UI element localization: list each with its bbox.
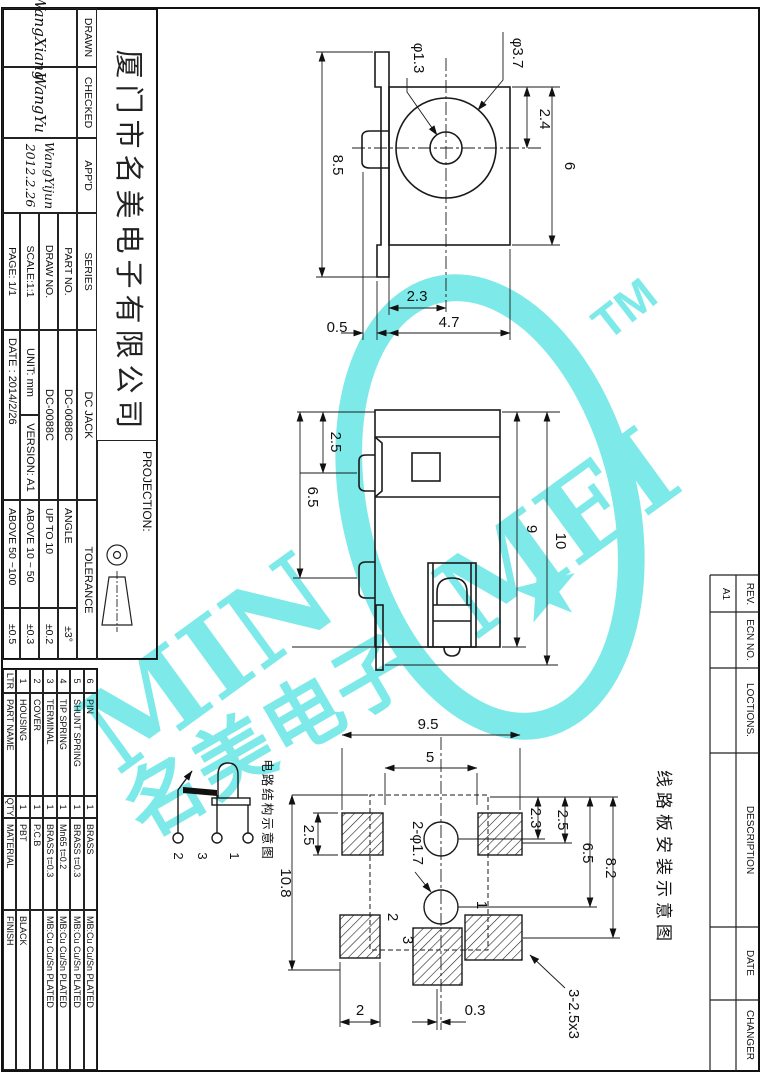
- side-view: 2.5 6.5 9 10: [292, 410, 569, 670]
- schematic-switch-arm: [178, 771, 192, 790]
- checked-label: CHECKED: [77, 67, 97, 138]
- tolerance-row-label: UP TO 10: [39, 500, 58, 608]
- dim-2: 2: [356, 1002, 364, 1019]
- pcb-caption: 线路板安装示意图: [654, 770, 673, 946]
- side-lug-1: [359, 455, 375, 491]
- third-angle-projection-icon: [99, 539, 135, 639]
- projection-label: PROJECTION:: [140, 451, 153, 532]
- bom-row: 1HOUSING1PBTBLACK: [16, 669, 29, 1070]
- date-value: DATE : 2014/2/26: [2, 330, 20, 500]
- tolerance-row-value: ±0.2: [39, 608, 58, 660]
- side-tip-spring: [437, 578, 467, 605]
- pcb-pin-3: 3: [399, 936, 416, 944]
- pad-bottom-center: [413, 928, 462, 985]
- dim-8-5: 8.5: [329, 155, 346, 176]
- side-pin: [376, 605, 383, 670]
- pad-top-left: [342, 813, 383, 855]
- dim-10-8: 10.8: [277, 868, 294, 897]
- dim-0-3: 0.3: [465, 1002, 486, 1019]
- series-label: SERIES: [77, 213, 97, 330]
- bom-row: 4TIP SPRING1Mn65 t=0.2MB:Cu Cu/Sn PLATED: [57, 669, 70, 1070]
- appd-label: APP'D: [77, 138, 97, 213]
- rev-value: A1: [720, 588, 731, 601]
- side-window: [412, 453, 440, 481]
- bom-row: 2COVER1P.C.B: [30, 669, 43, 1070]
- pcb-view: 9.5 5 2.5 10.8 2.3 2.5 6.5 8.2 2 0.3 2-φ…: [277, 716, 673, 1039]
- dim-2-4: 2.4: [536, 109, 553, 130]
- schematic-plug-tip: [218, 763, 238, 798]
- pcb-pin-1: 1: [473, 901, 490, 909]
- schematic-terminal-2: [173, 833, 183, 843]
- tolerance-row-value: ±0.3: [20, 608, 39, 660]
- schematic-terminal-1: [243, 833, 253, 843]
- note-2-phi1-7: 2-φ1.7: [409, 821, 426, 865]
- front-lug: [362, 131, 389, 168]
- dim-6: 6: [561, 162, 578, 170]
- dim-8-2: 8.2: [602, 858, 619, 879]
- schematic-terminal-3: [212, 833, 222, 843]
- tolerance-row-label: ABOVE 50 ~100: [2, 500, 20, 608]
- drawn-label: DRAWN: [77, 8, 97, 67]
- checked-signature: WangYu: [2, 67, 77, 138]
- part-no-value: DC-0088C: [58, 330, 77, 500]
- ecn-label: ECN NO.: [744, 619, 755, 661]
- dim-2-3: 2.3: [407, 288, 428, 305]
- changer-label: CHANGER: [744, 1010, 755, 1060]
- side-body: [375, 410, 500, 647]
- pad-bottom-left: [340, 915, 380, 958]
- tolerance-header: TOLERANCE: [77, 500, 97, 660]
- date-label: DATE: [744, 950, 755, 976]
- side-lug-2: [359, 562, 375, 598]
- description-label: DESCRIPTION: [744, 806, 755, 874]
- title-block: 厦门市名美电子有限公司 PROJECTION: DRAWN CHECKED AP…: [2, 8, 158, 1071]
- schematic-pin-1: 1: [227, 852, 242, 859]
- front-view: 8.5 φ1.3 φ3.7 2.4 6 2.3 4.7 0.5: [316, 32, 578, 340]
- dim-phi1-3: φ1.3: [410, 43, 427, 74]
- tolerance-row-label: ABOVE 10 ~ 50: [20, 500, 39, 608]
- drawn-signature: WangXiang: [2, 8, 77, 67]
- rev-label: REV.: [744, 583, 755, 605]
- draw-no-label: DRAW NO.: [39, 213, 58, 330]
- dim-0-5: 0.5: [327, 319, 348, 336]
- dim-10: 10: [552, 533, 569, 550]
- appd-signature-cell: WangYijun 2012.2.26: [2, 138, 77, 213]
- dim-9: 9: [523, 525, 540, 533]
- circuit-schematic: 2 3 1 电路结构示意图: [171, 759, 275, 861]
- page-value: PAGE: 1/1: [2, 213, 20, 330]
- locations-label: LOCTIONS.: [744, 683, 755, 737]
- front-dim-lines: [316, 32, 560, 340]
- pcb-dim-lines: [288, 735, 620, 1030]
- schematic-pin-2: 2: [171, 852, 186, 859]
- dim-9-5: 9.5: [418, 716, 439, 733]
- schematic-contact-bar: [183, 787, 217, 796]
- dim-6-5: 6.5: [304, 487, 321, 508]
- dim-phi3-7: φ3.7: [509, 38, 526, 69]
- part-no-label: PART NO.: [58, 213, 77, 330]
- appd-signature: WangYijun: [40, 142, 59, 209]
- dim-5: 5: [426, 749, 434, 766]
- tolerance-row-label: ANGLE: [58, 500, 77, 608]
- schematic-caption: 电路结构示意图: [260, 759, 275, 861]
- pad-bottom-right: [465, 915, 522, 960]
- projection-cell: PROJECTION:: [97, 440, 158, 660]
- tolerance-row-value: ±0.5: [2, 608, 20, 660]
- bom-row: 5SHUNT SPRING1BRASS t=0.3MB:Cu Cu/Sn PLA…: [70, 669, 83, 1070]
- pad-top-right: [478, 813, 522, 855]
- pcb-pin-2: 2: [384, 913, 401, 921]
- revision-table: REV. A1 ECN NO. LOCTIONS. DESCRIPTION DA…: [710, 575, 759, 1071]
- dim-pad-2-5: 2.5: [300, 825, 317, 846]
- company-name: 厦门市名美电子有限公司: [97, 44, 158, 440]
- tolerance-row-value: ±3°: [58, 608, 77, 660]
- dim-2-5: 2.5: [327, 432, 344, 453]
- bom-row: 3TERMINAL1BRASS t=0.3MB:Cu Cu/Sn PLATED: [43, 669, 56, 1070]
- dim-2-3b: 2.3: [527, 808, 544, 829]
- appd-date: 2012.2.26: [21, 144, 40, 208]
- drawing-sheet: MIN MEI TM 名美电子 ★: [0, 0, 762, 1079]
- draw-no-value: DC-0088C: [39, 330, 58, 500]
- dim-2-5r: 2.5: [554, 810, 571, 831]
- schematic-pin-3: 3: [195, 852, 210, 859]
- series-value: DC JACK: [77, 330, 97, 500]
- bom-row: 6PIN1BRASSMB:Cu Cu/Sn PLATED: [84, 669, 97, 1070]
- front-flange: [375, 52, 389, 277]
- unit-value: UNIT: mm: [20, 330, 39, 415]
- dim-6-5b: 6.5: [579, 843, 596, 864]
- bom-header-row: LTRPART NAMEQTYMATERIALFINISH: [3, 669, 16, 1070]
- scale-value: SCALE:1:1: [20, 213, 39, 330]
- bom-table: 6PIN1BRASSMB:Cu Cu/Sn PLATED 5SHUNT SPRI…: [2, 668, 98, 1071]
- version-value: VERSION: A1: [20, 415, 39, 500]
- note-3-2-5x3: 3-2.5x3: [565, 989, 582, 1039]
- dim-4-7: 4.7: [439, 314, 460, 331]
